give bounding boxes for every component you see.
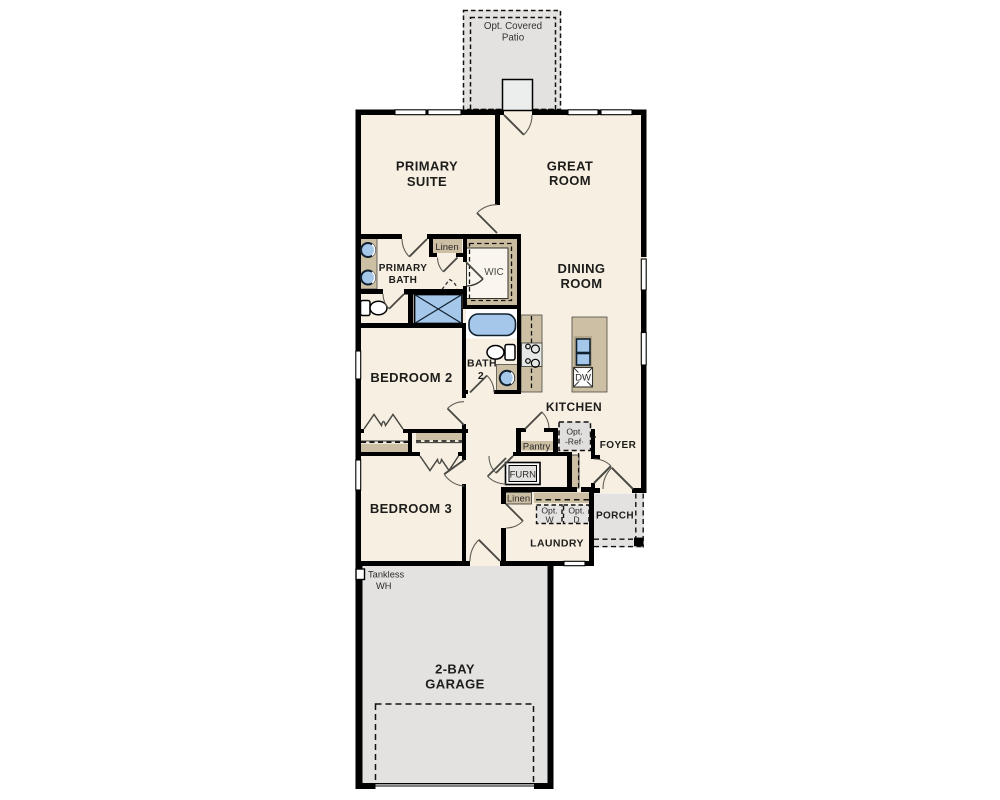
svg-text:PORCH: PORCH [596, 511, 634, 522]
svg-text:GREAT: GREAT [547, 159, 594, 174]
svg-text:GARAGE: GARAGE [425, 677, 484, 692]
svg-text:BATH: BATH [389, 275, 418, 286]
svg-text:Patio: Patio [502, 33, 525, 44]
svg-text:KITCHEN: KITCHEN [546, 400, 602, 414]
svg-text:Opt. Covered: Opt. Covered [484, 21, 542, 32]
svg-text:DW: DW [575, 373, 591, 384]
svg-text:DINING: DINING [558, 261, 606, 276]
svg-text:FOYER: FOYER [600, 440, 637, 451]
svg-text:LAUNDRY: LAUNDRY [530, 538, 584, 550]
svg-text:W: W [545, 515, 554, 525]
svg-text:Linen: Linen [435, 242, 458, 253]
svg-text:ROOM: ROOM [549, 173, 591, 188]
svg-text:BATH: BATH [467, 358, 497, 370]
svg-text:WIC: WIC [484, 267, 503, 278]
svg-text:Tankless: Tankless [368, 570, 405, 580]
svg-text:2: 2 [478, 370, 484, 382]
svg-text:ROOM: ROOM [560, 276, 602, 291]
svg-text:BEDROOM 3: BEDROOM 3 [370, 501, 452, 516]
svg-text:BEDROOM 2: BEDROOM 2 [370, 370, 452, 385]
svg-text:WH: WH [376, 581, 392, 591]
svg-text:2-BAY: 2-BAY [435, 662, 475, 677]
svg-text:Linen: Linen [507, 494, 530, 505]
svg-text:FURN: FURN [510, 470, 537, 481]
svg-text:-Ref·: -Ref· [565, 437, 584, 447]
svg-text:PRIMARY: PRIMARY [379, 263, 428, 274]
svg-text:Opt.: Opt. [566, 427, 582, 437]
svg-text:D: D [573, 515, 579, 525]
svg-text:PRIMARY: PRIMARY [396, 159, 458, 174]
svg-text:Pantry: Pantry [523, 442, 551, 453]
svg-text:SUITE: SUITE [407, 174, 447, 189]
